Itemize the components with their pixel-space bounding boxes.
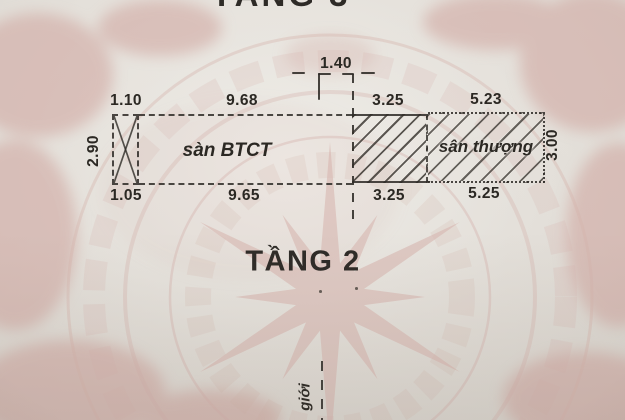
- dim-line-outer-dash-right: [361, 72, 375, 74]
- scanned-floorplan-photo: TẦNG 3 1.40 sàn BTCT sân thượng 1.10 9.6…: [0, 0, 625, 420]
- void-shaft-section: [112, 114, 139, 185]
- dim-top-3: 3.25: [372, 92, 404, 110]
- dim-label-center-width: 1.40: [320, 55, 352, 73]
- x-brace-icon: [114, 116, 137, 183]
- dim-left-height: 2.90: [85, 135, 103, 167]
- dim-bottom-4: 5.25: [468, 185, 500, 203]
- dim-right-height: 3.00: [544, 129, 562, 161]
- dim-bottom-3: 3.25: [373, 187, 405, 205]
- floor-2-title: TẦNG 2: [245, 246, 360, 279]
- boundary-line-dashed: [321, 361, 323, 420]
- dim-bottom-2: 9.65: [228, 187, 260, 205]
- dim-extension-line-left: [318, 73, 320, 100]
- dim-bottom-1: 1.05: [110, 187, 142, 205]
- setback-hatch-section: [352, 114, 428, 183]
- floor-3-title: TẦNG 3: [211, 0, 350, 14]
- dim-top-1: 1.10: [110, 92, 142, 110]
- boundary-label: giới: [297, 383, 314, 411]
- dim-top-4: 5.23: [470, 91, 502, 109]
- dim-top-2: 9.68: [226, 92, 258, 110]
- paper-speck: [355, 287, 358, 290]
- drawing-ink-layer: TẦNG 3 1.40 sàn BTCT sân thượng 1.10 9.6…: [0, 0, 625, 420]
- terrace-label: sân thượng: [439, 137, 533, 157]
- dim-line-outer-dash-left: [292, 72, 305, 74]
- slab-label: sàn BTCT: [183, 140, 272, 162]
- paper-speck: [319, 290, 322, 293]
